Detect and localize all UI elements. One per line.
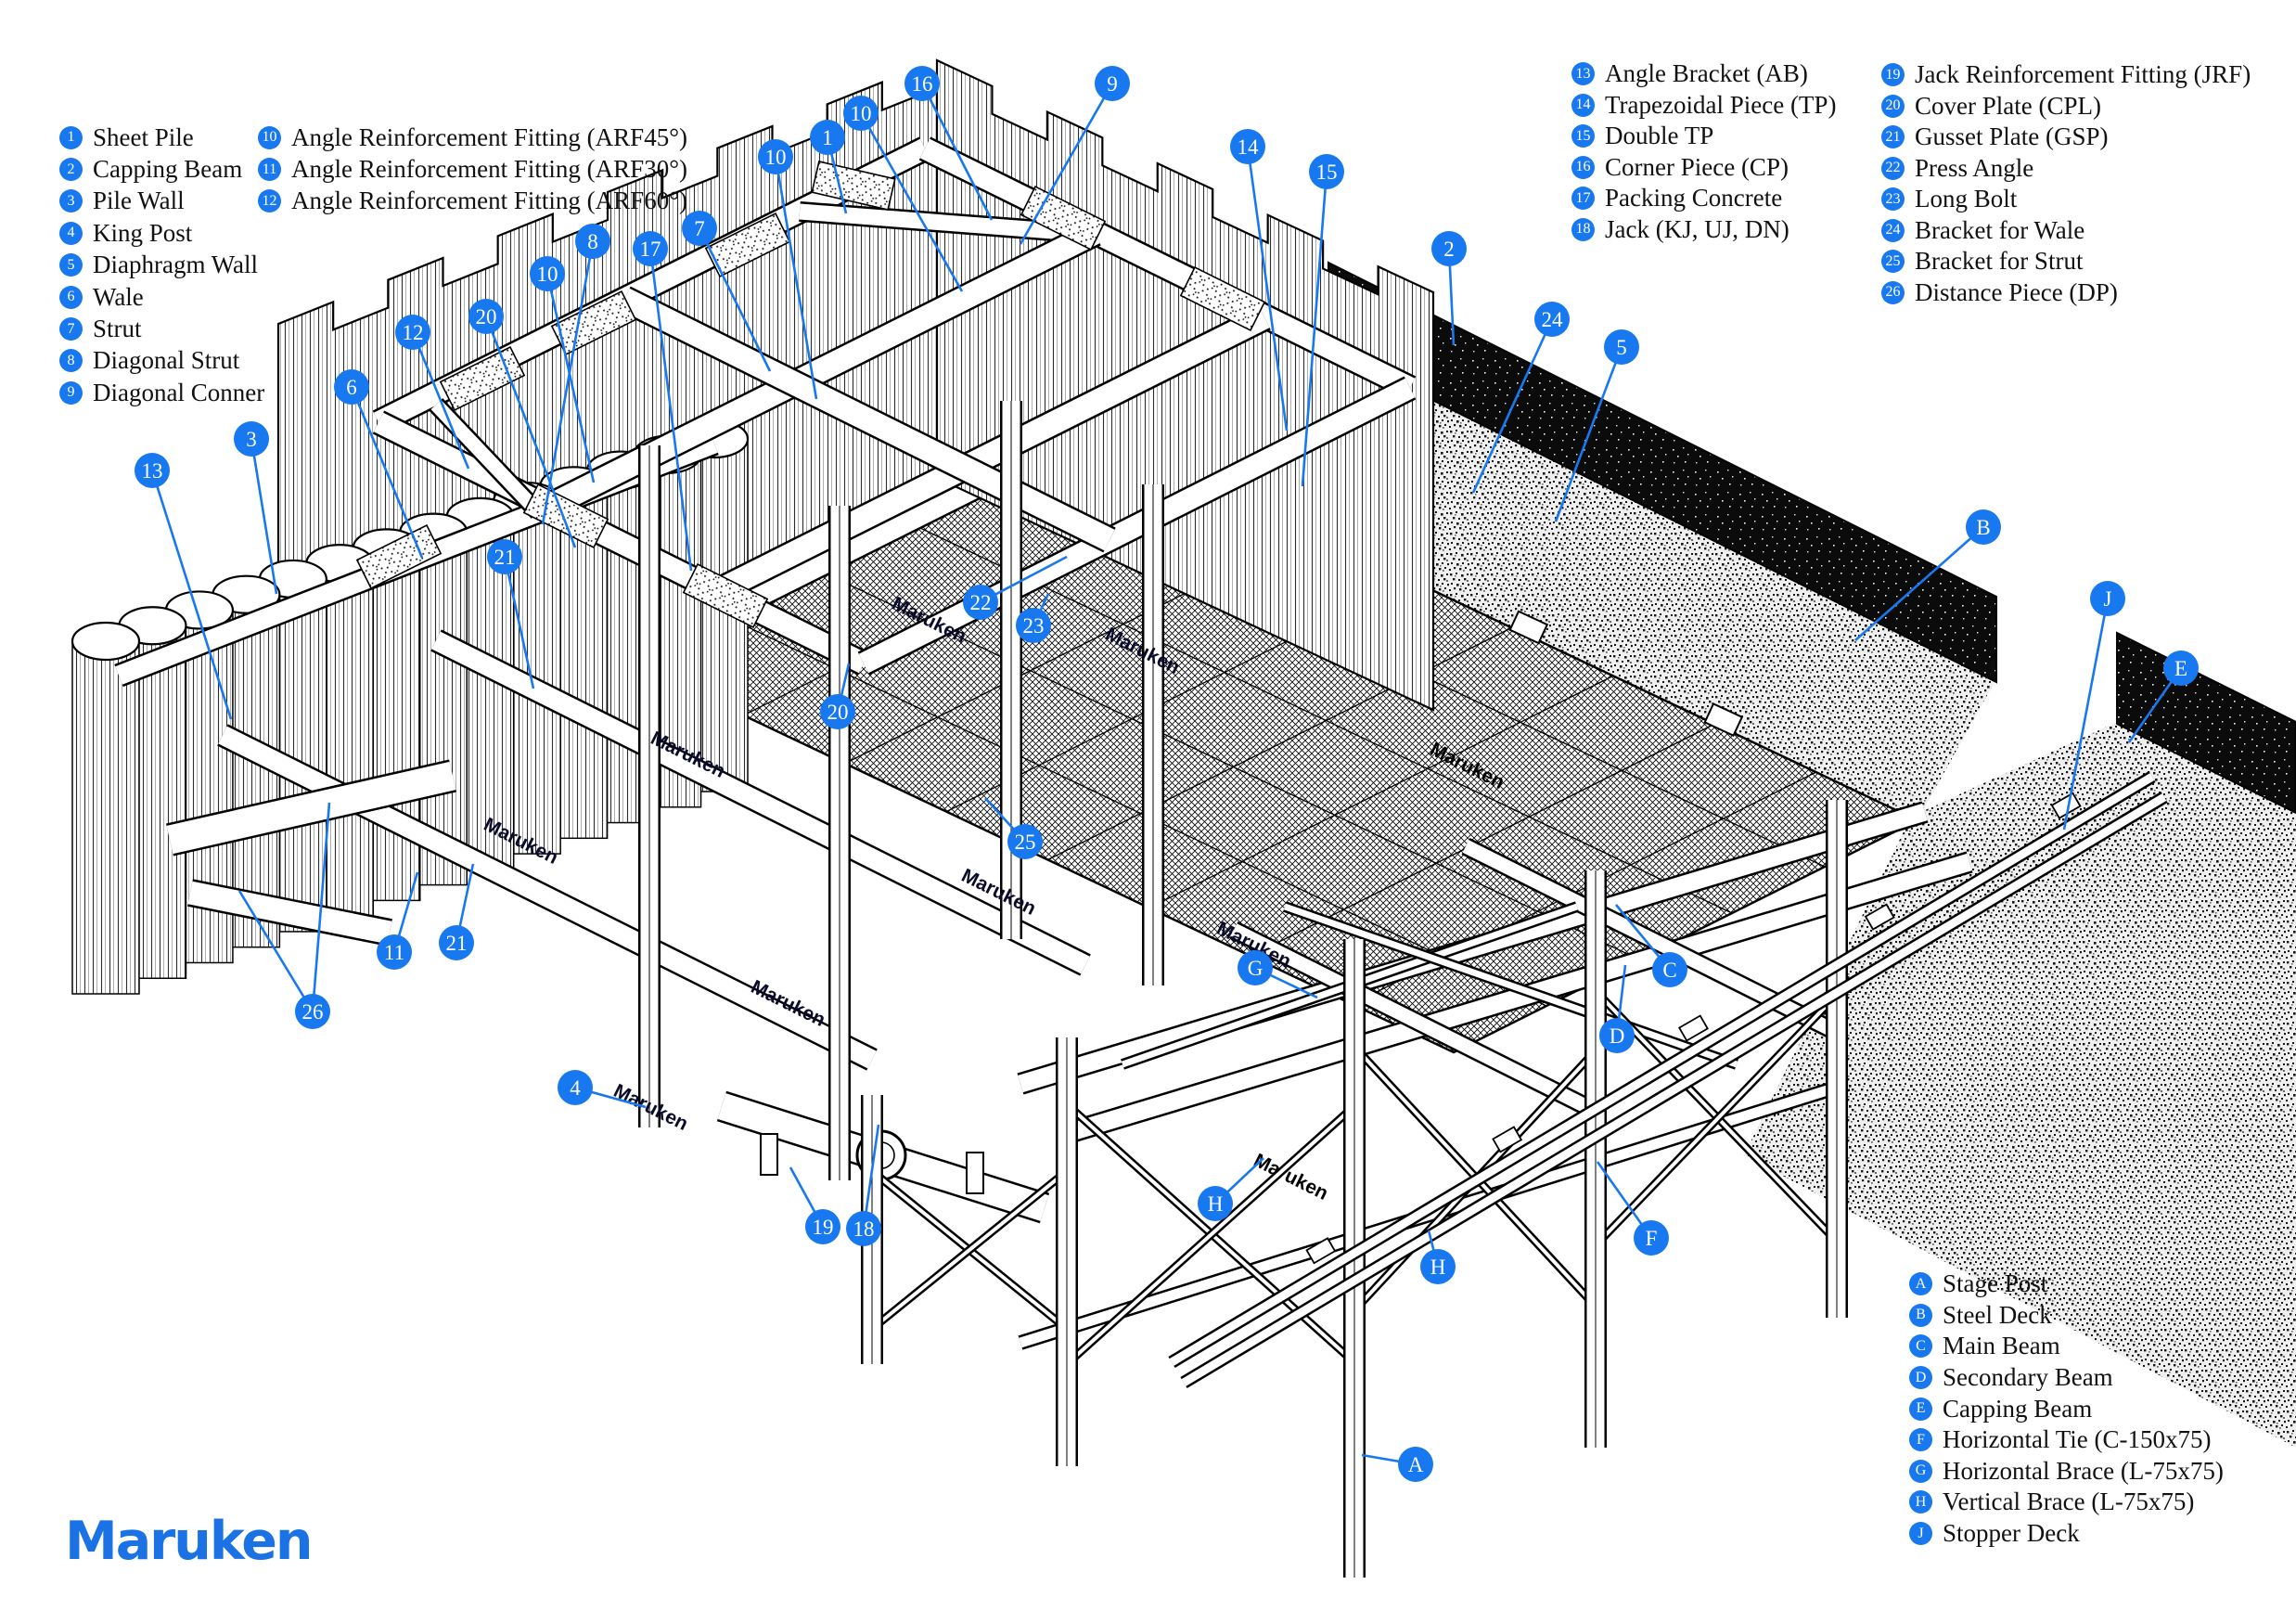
legend-label: Packing Concrete bbox=[1605, 184, 1782, 213]
legend-badge-5: 5 bbox=[59, 253, 83, 277]
legend-stage-parts: AStage PostBSteel DeckCMain BeamDSeconda… bbox=[1909, 1269, 2224, 1549]
legend-badge-E: E bbox=[1909, 1398, 1932, 1421]
legend-item-25: 25Bracket for Strut bbox=[1881, 246, 2251, 277]
legend-label: Jack Reinforcement Fitting (JRF) bbox=[1915, 60, 2251, 89]
legend-badge-21: 21 bbox=[1881, 125, 1905, 148]
legend-badge-20: 20 bbox=[1881, 95, 1905, 118]
callout-label: 21 bbox=[494, 546, 516, 569]
legend-label: Angle Reinforcement Fitting (ARF60°) bbox=[291, 187, 687, 215]
legend-fittings-19-26: 19Jack Reinforcement Fitting (JRF)20Cove… bbox=[1881, 59, 2251, 308]
callout-label: 14 bbox=[1238, 135, 1260, 159]
legend-item-5: 5Diaphragm Wall bbox=[59, 250, 264, 281]
legend-label: Stage Post bbox=[1943, 1269, 2047, 1298]
callout-label: 20 bbox=[827, 701, 849, 724]
legend-label: Angle Bracket (AB) bbox=[1605, 59, 1808, 88]
callout-label: F bbox=[1646, 1227, 1658, 1250]
legend-badge-23: 23 bbox=[1881, 187, 1905, 211]
legend-badge-19: 19 bbox=[1881, 63, 1905, 86]
callout-label: 9 bbox=[1107, 72, 1118, 96]
callout-label: C bbox=[1662, 959, 1676, 982]
legend-badge-6: 6 bbox=[59, 286, 83, 309]
callout-label: 8 bbox=[587, 230, 598, 253]
legend-badge-7: 7 bbox=[59, 317, 83, 341]
callout-label: 18 bbox=[853, 1217, 875, 1241]
legend-badge-F: F bbox=[1909, 1428, 1932, 1451]
callout-label: 5 bbox=[1616, 336, 1627, 359]
legend-item-C: CMain Beam bbox=[1909, 1331, 2224, 1362]
legend-label: Diaphragm Wall bbox=[93, 251, 258, 279]
callout-label: 11 bbox=[384, 941, 404, 964]
callout-label: 6 bbox=[346, 376, 357, 399]
legend-badge-13: 13 bbox=[1571, 62, 1595, 85]
legend-label: Pile Wall bbox=[93, 187, 185, 215]
callout-label: 3 bbox=[246, 428, 257, 451]
legend-item-18: 18Jack (KJ, UJ, DN) bbox=[1571, 214, 1836, 246]
legend-badge-12: 12 bbox=[258, 189, 281, 213]
legend-item-J: JStopper Deck bbox=[1909, 1518, 2224, 1550]
callout-label: 12 bbox=[403, 321, 424, 344]
legend-label: Double TP bbox=[1605, 122, 1713, 150]
legend-label: Stopper Deck bbox=[1943, 1519, 2080, 1548]
legend-label: Horizontal Tie (C-150x75) bbox=[1943, 1425, 2212, 1454]
callout-label: A bbox=[1408, 1453, 1424, 1476]
callout-label: 10 bbox=[765, 146, 787, 169]
callout-A: A bbox=[1362, 1447, 1433, 1482]
legend-label: Sheet Pile bbox=[93, 123, 194, 152]
legend-badge-4: 4 bbox=[59, 222, 83, 245]
legend-badge-10: 10 bbox=[258, 126, 281, 149]
callout-label: 21 bbox=[446, 932, 468, 955]
callout-label: E bbox=[2174, 657, 2187, 680]
legend-label: Bracket for Wale bbox=[1915, 216, 2084, 245]
legend-badge-25: 25 bbox=[1881, 250, 1905, 273]
legend-structure-parts: 1Sheet Pile2Capping Beam3Pile Wall4King … bbox=[59, 122, 264, 409]
maruken-logo: Maruken bbox=[65, 1511, 312, 1572]
callout-label: 23 bbox=[1023, 614, 1045, 638]
legend-item-21: 21Gusset Plate (GSP) bbox=[1881, 122, 2251, 153]
legend-item-4: 4King Post bbox=[59, 217, 264, 249]
callout-label: 10 bbox=[537, 263, 558, 286]
legend-badge-16: 16 bbox=[1571, 156, 1595, 179]
legend-item-8: 8Diagonal Strut bbox=[59, 345, 264, 377]
callout-label: 1 bbox=[822, 126, 833, 149]
legend-item-9: 9Diagonal Conner bbox=[59, 377, 264, 408]
callout-label: 26 bbox=[302, 1000, 324, 1024]
legend-label: Jack (KJ, UJ, DN) bbox=[1605, 215, 1789, 244]
callout-label: 19 bbox=[813, 1216, 834, 1239]
legend-badge-A: A bbox=[1909, 1272, 1932, 1295]
legend-badge-G: G bbox=[1909, 1460, 1932, 1483]
legend-item-24: 24Bracket for Wale bbox=[1881, 215, 2251, 247]
legend-badge-D: D bbox=[1909, 1366, 1932, 1389]
callout-label: 22 bbox=[970, 591, 992, 614]
legend-badge-2: 2 bbox=[59, 158, 83, 181]
legend-badge-J: J bbox=[1909, 1522, 1932, 1545]
legend-item-1: 1Sheet Pile bbox=[59, 122, 264, 153]
legend-arf-fittings: 10Angle Reinforcement Fitting (ARF45°)11… bbox=[258, 122, 687, 217]
legend-badge-1: 1 bbox=[59, 126, 83, 149]
legend-fittings-13-18: 13Angle Bracket (AB)14Trapezoidal Piece … bbox=[1571, 58, 1836, 245]
legend-item-16: 16Corner Piece (CP) bbox=[1571, 152, 1836, 184]
legend-badge-14: 14 bbox=[1571, 94, 1595, 117]
legend-item-19: 19Jack Reinforcement Fitting (JRF) bbox=[1881, 59, 2251, 91]
legend-item-6: 6Wale bbox=[59, 281, 264, 313]
legend-badge-15: 15 bbox=[1571, 124, 1595, 148]
legend-label: Capping Beam bbox=[93, 155, 242, 184]
legend-item-3: 3Pile Wall bbox=[59, 186, 264, 217]
legend-item-26: 26Distance Piece (DP) bbox=[1881, 277, 2251, 309]
callout-label: 17 bbox=[640, 238, 661, 261]
legend-label: Angle Reinforcement Fitting (ARF30°) bbox=[291, 155, 687, 184]
legend-badge-C: C bbox=[1909, 1334, 1932, 1358]
legend-badge-26: 26 bbox=[1881, 281, 1905, 304]
callout-label: 25 bbox=[1015, 831, 1036, 854]
legend-item-D: DSecondary Beam bbox=[1909, 1362, 2224, 1394]
legend-label: Long Bolt bbox=[1915, 185, 2017, 213]
legend-label: Angle Reinforcement Fitting (ARF45°) bbox=[291, 123, 687, 152]
legend-item-7: 7Strut bbox=[59, 313, 264, 344]
legend-badge-H: H bbox=[1909, 1490, 1932, 1514]
legend-badge-3: 3 bbox=[59, 189, 83, 213]
legend-badge-17: 17 bbox=[1571, 187, 1595, 210]
callout-label: 2 bbox=[1443, 238, 1455, 261]
legend-item-22: 22Press Angle bbox=[1881, 153, 2251, 185]
callout-label: H bbox=[1430, 1256, 1446, 1279]
legend-item-2: 2Capping Beam bbox=[59, 153, 264, 185]
legend-item-15: 15Double TP bbox=[1571, 121, 1836, 152]
legend-badge-18: 18 bbox=[1571, 218, 1595, 241]
legend-label: Vertical Brace (L-75x75) bbox=[1943, 1488, 2194, 1516]
legend-item-20: 20Cover Plate (CPL) bbox=[1881, 91, 2251, 122]
callout-H: H bbox=[1198, 1158, 1263, 1221]
legend-item-F: FHorizontal Tie (C-150x75) bbox=[1909, 1424, 2224, 1456]
callout-label: 15 bbox=[1316, 161, 1338, 184]
callout-label: 24 bbox=[1542, 308, 1564, 331]
legend-item-A: AStage Post bbox=[1909, 1269, 2224, 1300]
callout-label: D bbox=[1610, 1024, 1625, 1048]
legend-item-14: 14Trapezoidal Piece (TP) bbox=[1571, 90, 1836, 122]
callout-label: J bbox=[2104, 587, 2112, 611]
legend-label: Secondary Beam bbox=[1943, 1363, 2113, 1392]
callout-label: B bbox=[1976, 516, 1990, 539]
callout-label: H bbox=[1208, 1192, 1224, 1216]
legend-label: Diagonal Conner bbox=[93, 379, 264, 407]
callout-label: 4 bbox=[570, 1076, 581, 1100]
legend-badge-B: B bbox=[1909, 1304, 1932, 1327]
callout-label: G bbox=[1248, 957, 1263, 980]
legend-label: King Post bbox=[93, 219, 192, 248]
legend-badge-8: 8 bbox=[59, 349, 83, 372]
legend-item-23: 23Long Bolt bbox=[1881, 184, 2251, 215]
legend-label: Bracket for Strut bbox=[1915, 247, 2083, 276]
legend-label: Steel Deck bbox=[1943, 1301, 2052, 1330]
legend-label: Corner Piece (CP) bbox=[1605, 153, 1789, 182]
legend-label: Press Angle bbox=[1915, 154, 2033, 183]
legend-label: Horizontal Brace (L-75x75) bbox=[1943, 1457, 2224, 1486]
legend-label: Capping Beam bbox=[1943, 1395, 2092, 1423]
diagram-canvas: MarukenMaruken MarukenMarukenMarukenMaru… bbox=[0, 0, 2296, 1623]
legend-label: Strut bbox=[93, 315, 142, 343]
legend-badge-11: 11 bbox=[258, 158, 281, 181]
legend-item-E: ECapping Beam bbox=[1909, 1393, 2224, 1424]
legend-item-12: 12Angle Reinforcement Fitting (ARF60°) bbox=[258, 186, 687, 217]
callout-label: 13 bbox=[142, 459, 163, 483]
legend-label: Gusset Plate (GSP) bbox=[1915, 122, 2109, 151]
legend-item-11: 11Angle Reinforcement Fitting (ARF30°) bbox=[258, 153, 687, 185]
legend-item-10: 10Angle Reinforcement Fitting (ARF45°) bbox=[258, 122, 687, 153]
legend-item-G: GHorizontal Brace (L-75x75) bbox=[1909, 1456, 2224, 1488]
legend-item-B: BSteel Deck bbox=[1909, 1300, 2224, 1332]
legend-item-13: 13Angle Bracket (AB) bbox=[1571, 58, 1836, 90]
legend-item-H: HVertical Brace (L-75x75) bbox=[1909, 1487, 2224, 1518]
legend-badge-24: 24 bbox=[1881, 219, 1905, 242]
legend-label: Distance Piece (DP) bbox=[1915, 278, 2118, 307]
legend-item-17: 17Packing Concrete bbox=[1571, 183, 1836, 214]
callout-label: 7 bbox=[694, 217, 705, 240]
legend-label: Trapezoidal Piece (TP) bbox=[1605, 91, 1836, 120]
legend-badge-9: 9 bbox=[59, 381, 83, 405]
callout-label: 16 bbox=[912, 72, 933, 96]
legend-label: Cover Plate (CPL) bbox=[1915, 92, 2101, 121]
callout-label: 20 bbox=[476, 305, 497, 328]
legend-label: Main Beam bbox=[1943, 1332, 2060, 1360]
legend-badge-22: 22 bbox=[1881, 157, 1905, 180]
legend-label: Diagonal Strut bbox=[93, 346, 239, 375]
legend-label: Wale bbox=[93, 283, 144, 312]
callout-label: 10 bbox=[851, 102, 872, 125]
